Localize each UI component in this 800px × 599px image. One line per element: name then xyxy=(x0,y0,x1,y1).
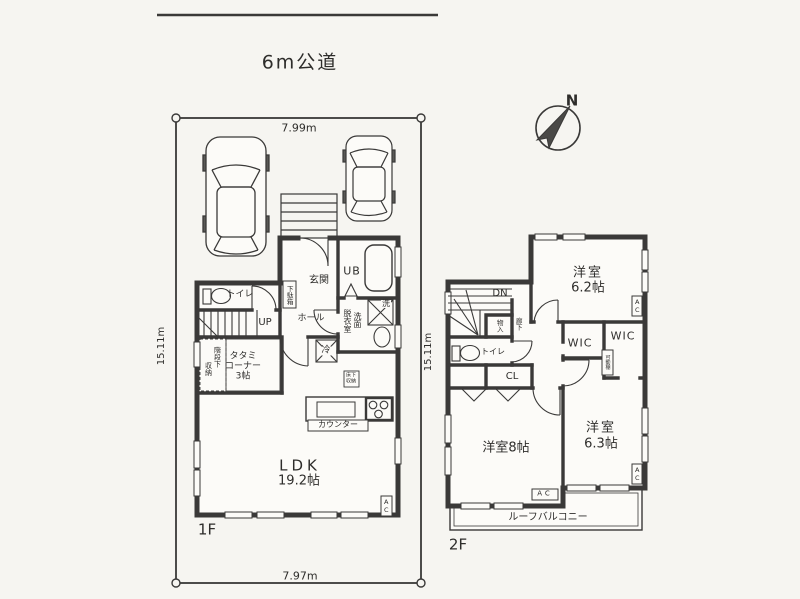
shoe-cabinet-label: 下駄箱 xyxy=(286,285,293,305)
bedroom63-size-label: 6.3帖 xyxy=(584,438,618,451)
storage-label-2f: 物入 xyxy=(496,320,503,333)
bedroom8-label: 洋室8帖 xyxy=(482,442,529,455)
corridor-label: 廊下 xyxy=(515,318,522,331)
ldk-label: LDK xyxy=(279,459,321,474)
floor2-footprint xyxy=(448,237,645,506)
floor2-dim-left: 15.11m xyxy=(424,333,434,371)
north-compass-icon xyxy=(536,106,580,150)
wic-label-2: WIC xyxy=(611,331,636,342)
washroom-label-senmen: 洗面 xyxy=(353,312,361,328)
counter-label: カウンター xyxy=(318,421,358,429)
toilet-icon-2f xyxy=(452,346,480,362)
lot-dim-left: 15.11m xyxy=(157,327,167,365)
tatami-corner-label-3: 3帖 xyxy=(236,373,251,382)
hall-label: ホール xyxy=(297,315,324,324)
ac-label-1f: AC xyxy=(383,498,390,514)
under-stair-storage-label-right: 階段下 xyxy=(214,347,221,368)
car-icon-left xyxy=(203,137,269,256)
roof-balcony-label: ルーフバルコニー xyxy=(508,513,587,523)
washroom-label-datsuiishitsu: 脱衣室 xyxy=(343,309,351,333)
bedroom62-label: 洋室 xyxy=(573,267,603,280)
ac-label-2f-right-top: AC xyxy=(634,298,641,314)
ac-label-2f-bottom: AC xyxy=(537,491,553,498)
lot-dim-bottom: 7.97m xyxy=(282,571,317,582)
floor-label-2f: 2F xyxy=(449,538,467,553)
toilet-label-1f: トイレ xyxy=(226,291,253,300)
ldk-size-label: 19.2帖 xyxy=(278,475,320,488)
road-label: 6m公道 xyxy=(262,54,339,73)
wic-label-1: WIC xyxy=(568,338,593,349)
floor-storage-label-2: 収納 xyxy=(346,380,356,385)
stairs-down-label: DN xyxy=(492,289,507,299)
bathtub-icon xyxy=(365,245,392,291)
tatami-corner-label-2: コーナー xyxy=(225,363,261,372)
closet-label: CL xyxy=(506,372,519,382)
floor-plan-drawing xyxy=(0,0,800,599)
north-label: N xyxy=(566,94,579,109)
entrance-label: 玄関 xyxy=(309,276,329,286)
ac-label-2f-right-bottom: AC xyxy=(634,466,641,482)
floor-plan-page: 6m公道 N 7.99m 7.97m 15.11m 15.11m 玄関 下駄箱 … xyxy=(0,0,800,599)
stairs-up-label: UP xyxy=(258,318,271,328)
wash-basin-icon xyxy=(374,327,390,347)
under-stair-storage-label-left: 収納 xyxy=(205,362,212,376)
floor-label-1f: 1F xyxy=(198,523,216,538)
unit-bath-label: UB xyxy=(343,266,361,277)
toilet-label-2f: トイレ xyxy=(481,348,505,356)
porch-steps xyxy=(281,194,337,238)
lot-dim-top: 7.99m xyxy=(281,123,316,134)
washing-machine-label: 洗 xyxy=(381,300,391,308)
refrigerator-label: 冷 xyxy=(320,347,331,356)
bedroom63-label: 洋室 xyxy=(586,422,616,435)
tatami-corner-label-1: タタミ xyxy=(229,353,256,362)
bedroom62-size-label: 6.2帖 xyxy=(571,282,605,295)
car-icon-right xyxy=(343,136,395,221)
movable-shelf-label: 可動棚 xyxy=(605,355,610,370)
